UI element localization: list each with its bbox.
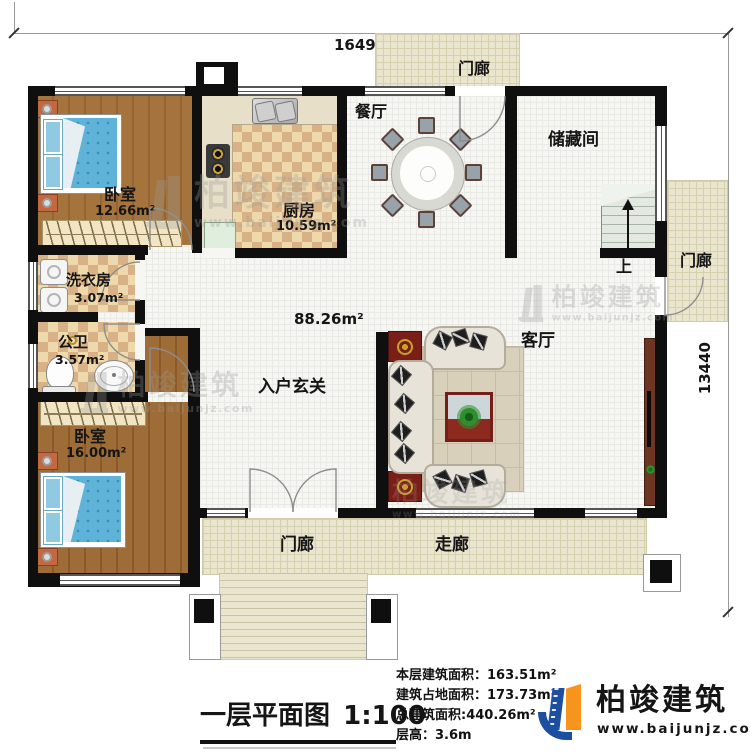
label-laundry-area: 3.07m² [74,290,123,305]
company-logo: 柏竣建筑 www.baijunjz.com [536,680,746,750]
label-storage: 储藏间 [548,131,599,150]
stats-block: 本层建筑面积：163.51m² 建筑占地面积：173.73m² 总建筑面积:44… [396,666,556,746]
bedroom2-door-arc [150,348,194,392]
dining-door-arc [460,96,505,141]
plan-title: 一层平面图 [200,701,330,731]
floor-plan: 16490 13440 [0,0,750,755]
bedroom1-door-arc [150,208,192,250]
stat-total-area: 总建筑面积:440.26m² [396,706,556,726]
label-kitchen-area: 10.59m² [276,219,336,234]
label-porch-right: 门廊 [680,252,712,270]
title-underline-shadow [203,747,396,749]
company-url: www.baijunjz.com [597,722,750,737]
label-laundry: 洗衣房 [66,272,111,289]
stat-floor-height: 层高：3.6m [396,726,556,746]
label-bedroom1: 卧室 [104,186,136,204]
label-porch-top: 门廊 [458,60,490,78]
label-corridor: 走廊 [435,536,469,555]
plan-title-block: 一层平面图 1:100 [200,702,426,731]
label-living: 客厅 [521,332,555,351]
front-door-right-arc [293,469,336,512]
front-door-left-arc [250,469,293,512]
porch-right-door-arc [665,277,703,315]
label-hall: 入户玄关 [258,378,326,397]
company-name: 柏竣建筑 [596,684,728,717]
stat-footprint-area: 建筑占地面积：173.73m² [396,686,556,706]
label-dining: 餐厅 [355,103,387,121]
bathroom-door-arc [104,324,140,360]
label-stairs-up: 上 [616,258,632,276]
label-bedroom1-area: 12.66m² [95,204,155,219]
label-bedroom2-area: 16.00m² [66,446,126,461]
label-hall-area: 88.26m² [294,310,364,328]
company-logo-icon [536,682,592,744]
stat-floor-area: 本层建筑面积：163.51m² [396,666,556,686]
label-bedroom2: 卧室 [74,428,106,446]
label-bathroom: 公卫 [58,334,88,351]
title-underline [200,740,396,744]
label-kitchen: 厨房 [283,202,315,220]
label-bathroom-area: 3.57m² [55,352,104,367]
label-porch-bottom: 门廊 [280,536,314,555]
